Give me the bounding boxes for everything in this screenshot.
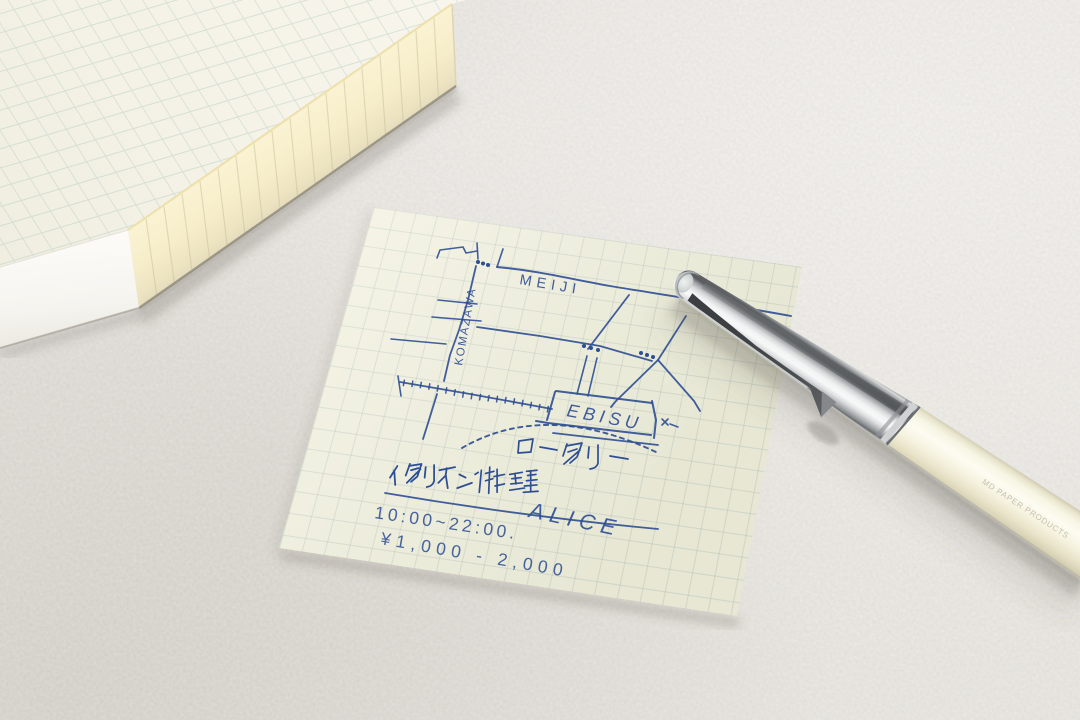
svg-text:ALICE: ALICE: [525, 497, 624, 541]
svg-text:MEIJI: MEIJI: [518, 272, 582, 298]
svg-text:KOMAZAWA: KOMAZAWA: [453, 287, 479, 367]
